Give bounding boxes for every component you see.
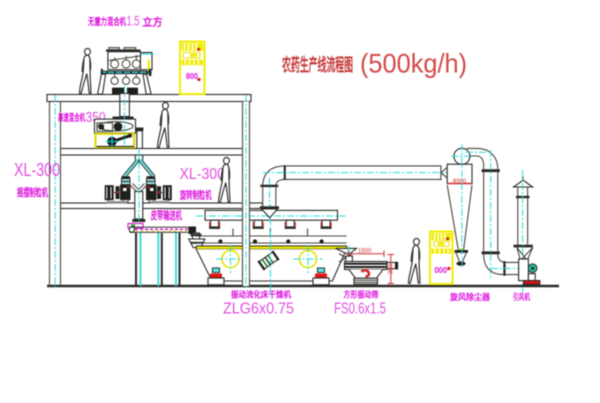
- svg-text:农药生产线流程图: 农药生产线流程图: [281, 55, 353, 75]
- svg-text:800: 800: [186, 71, 198, 81]
- svg-text:Φ900: Φ900: [453, 179, 467, 185]
- svg-text:摇摆制粒机: 摇摆制粒机: [17, 186, 48, 199]
- svg-text:FS0.6x1.5: FS0.6x1.5: [334, 301, 386, 318]
- svg-text:振动流化床干燥机: 振动流化床干燥机: [231, 290, 291, 300]
- svg-text:无重力混合机: 无重力混合机: [87, 16, 126, 28]
- svg-text:XL-300: XL-300: [180, 166, 226, 183]
- svg-text:高速混合机: 高速混合机: [58, 112, 85, 124]
- svg-text:1.5: 1.5: [127, 14, 140, 29]
- svg-text:000: 000: [435, 265, 448, 275]
- svg-text:旋转制粒机: 旋转制粒机: [179, 189, 211, 202]
- svg-text:(500kg/h): (500kg/h): [360, 49, 467, 79]
- svg-text:方形振动筛: 方形振动筛: [344, 290, 379, 300]
- svg-text:引风机: 引风机: [513, 292, 530, 302]
- svg-text:皮带输送机: 皮带输送机: [150, 208, 182, 222]
- svg-text:旋风除尘器: 旋风除尘器: [449, 292, 490, 302]
- svg-text:立方: 立方: [143, 16, 163, 29]
- svg-text:XL-300: XL-300: [14, 160, 60, 180]
- svg-text:350: 350: [389, 263, 395, 274]
- svg-text:ZLG6x0.75: ZLG6x0.75: [223, 301, 294, 318]
- svg-text:1500: 1500: [358, 249, 372, 255]
